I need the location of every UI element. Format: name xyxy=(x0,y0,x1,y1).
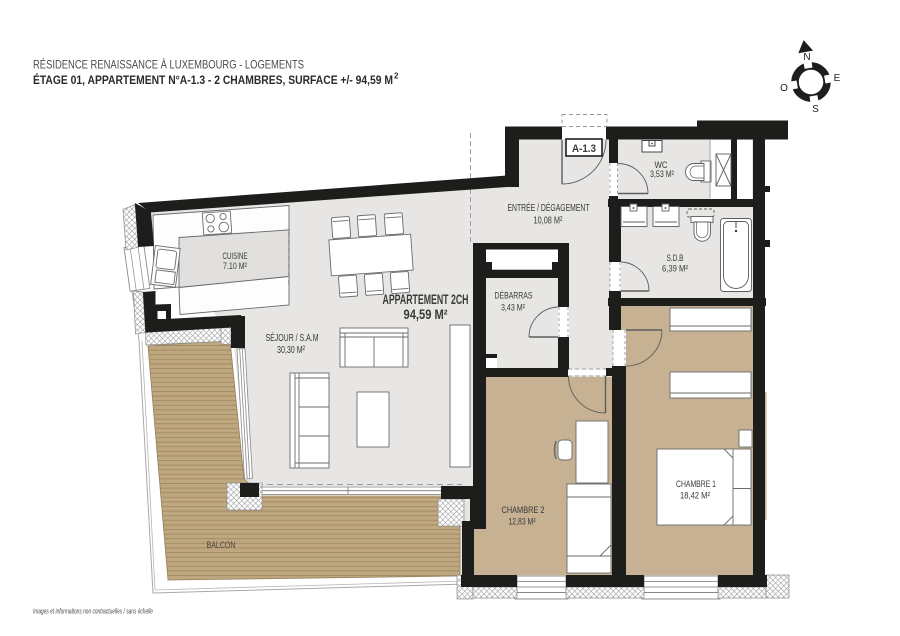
svg-text:18,42 M²: 18,42 M² xyxy=(680,491,710,502)
svg-text:RÉSIDENCE RENAISSANCE À LUXEMB: RÉSIDENCE RENAISSANCE À LUXEMBOURG - LOG… xyxy=(33,57,304,72)
svg-text:Images et informations non con: Images et informations non contractuelle… xyxy=(33,607,153,616)
svg-text:30,30 M²: 30,30 M² xyxy=(277,344,305,356)
svg-text:6,39 M²: 6,39 M² xyxy=(662,264,688,275)
svg-text:10,08 M²: 10,08 M² xyxy=(534,215,563,227)
svg-text:N: N xyxy=(803,52,810,63)
svg-text:7.10 M²: 7.10 M² xyxy=(223,261,247,272)
svg-text:BALCON: BALCON xyxy=(207,540,236,551)
svg-text:S: S xyxy=(812,104,819,115)
svg-text:O: O xyxy=(780,83,788,94)
svg-text:A-1.3: A-1.3 xyxy=(572,143,596,155)
svg-text:ENTRÉE / DÉGAGEMENT: ENTRÉE / DÉGAGEMENT xyxy=(508,201,590,214)
svg-text:3,43 M²: 3,43 M² xyxy=(501,303,525,314)
svg-text:94,59 M²: 94,59 M² xyxy=(404,307,448,322)
svg-text:DÉBARRAS: DÉBARRAS xyxy=(495,291,533,302)
svg-text:APPARTEMENT 2CH: APPARTEMENT 2CH xyxy=(383,292,469,307)
svg-text:12,83 M²: 12,83 M² xyxy=(509,517,536,528)
svg-text:E: E xyxy=(834,73,841,84)
svg-text:2: 2 xyxy=(394,72,399,81)
svg-text:CHAMBRE 1: CHAMBRE 1 xyxy=(676,479,716,490)
svg-text:CHAMBRE 2: CHAMBRE 2 xyxy=(502,505,545,516)
svg-text:3,53 M²: 3,53 M² xyxy=(650,169,674,180)
svg-text:S.D.B: S.D.B xyxy=(667,253,684,264)
svg-text:SÉJOUR / S.A.M: SÉJOUR / S.A.M xyxy=(266,331,319,344)
svg-text:ÉTAGE 01, APPARTEMENT N°A-1.3: ÉTAGE 01, APPARTEMENT N°A-1.3 - 2 CHAMBR… xyxy=(33,72,393,87)
